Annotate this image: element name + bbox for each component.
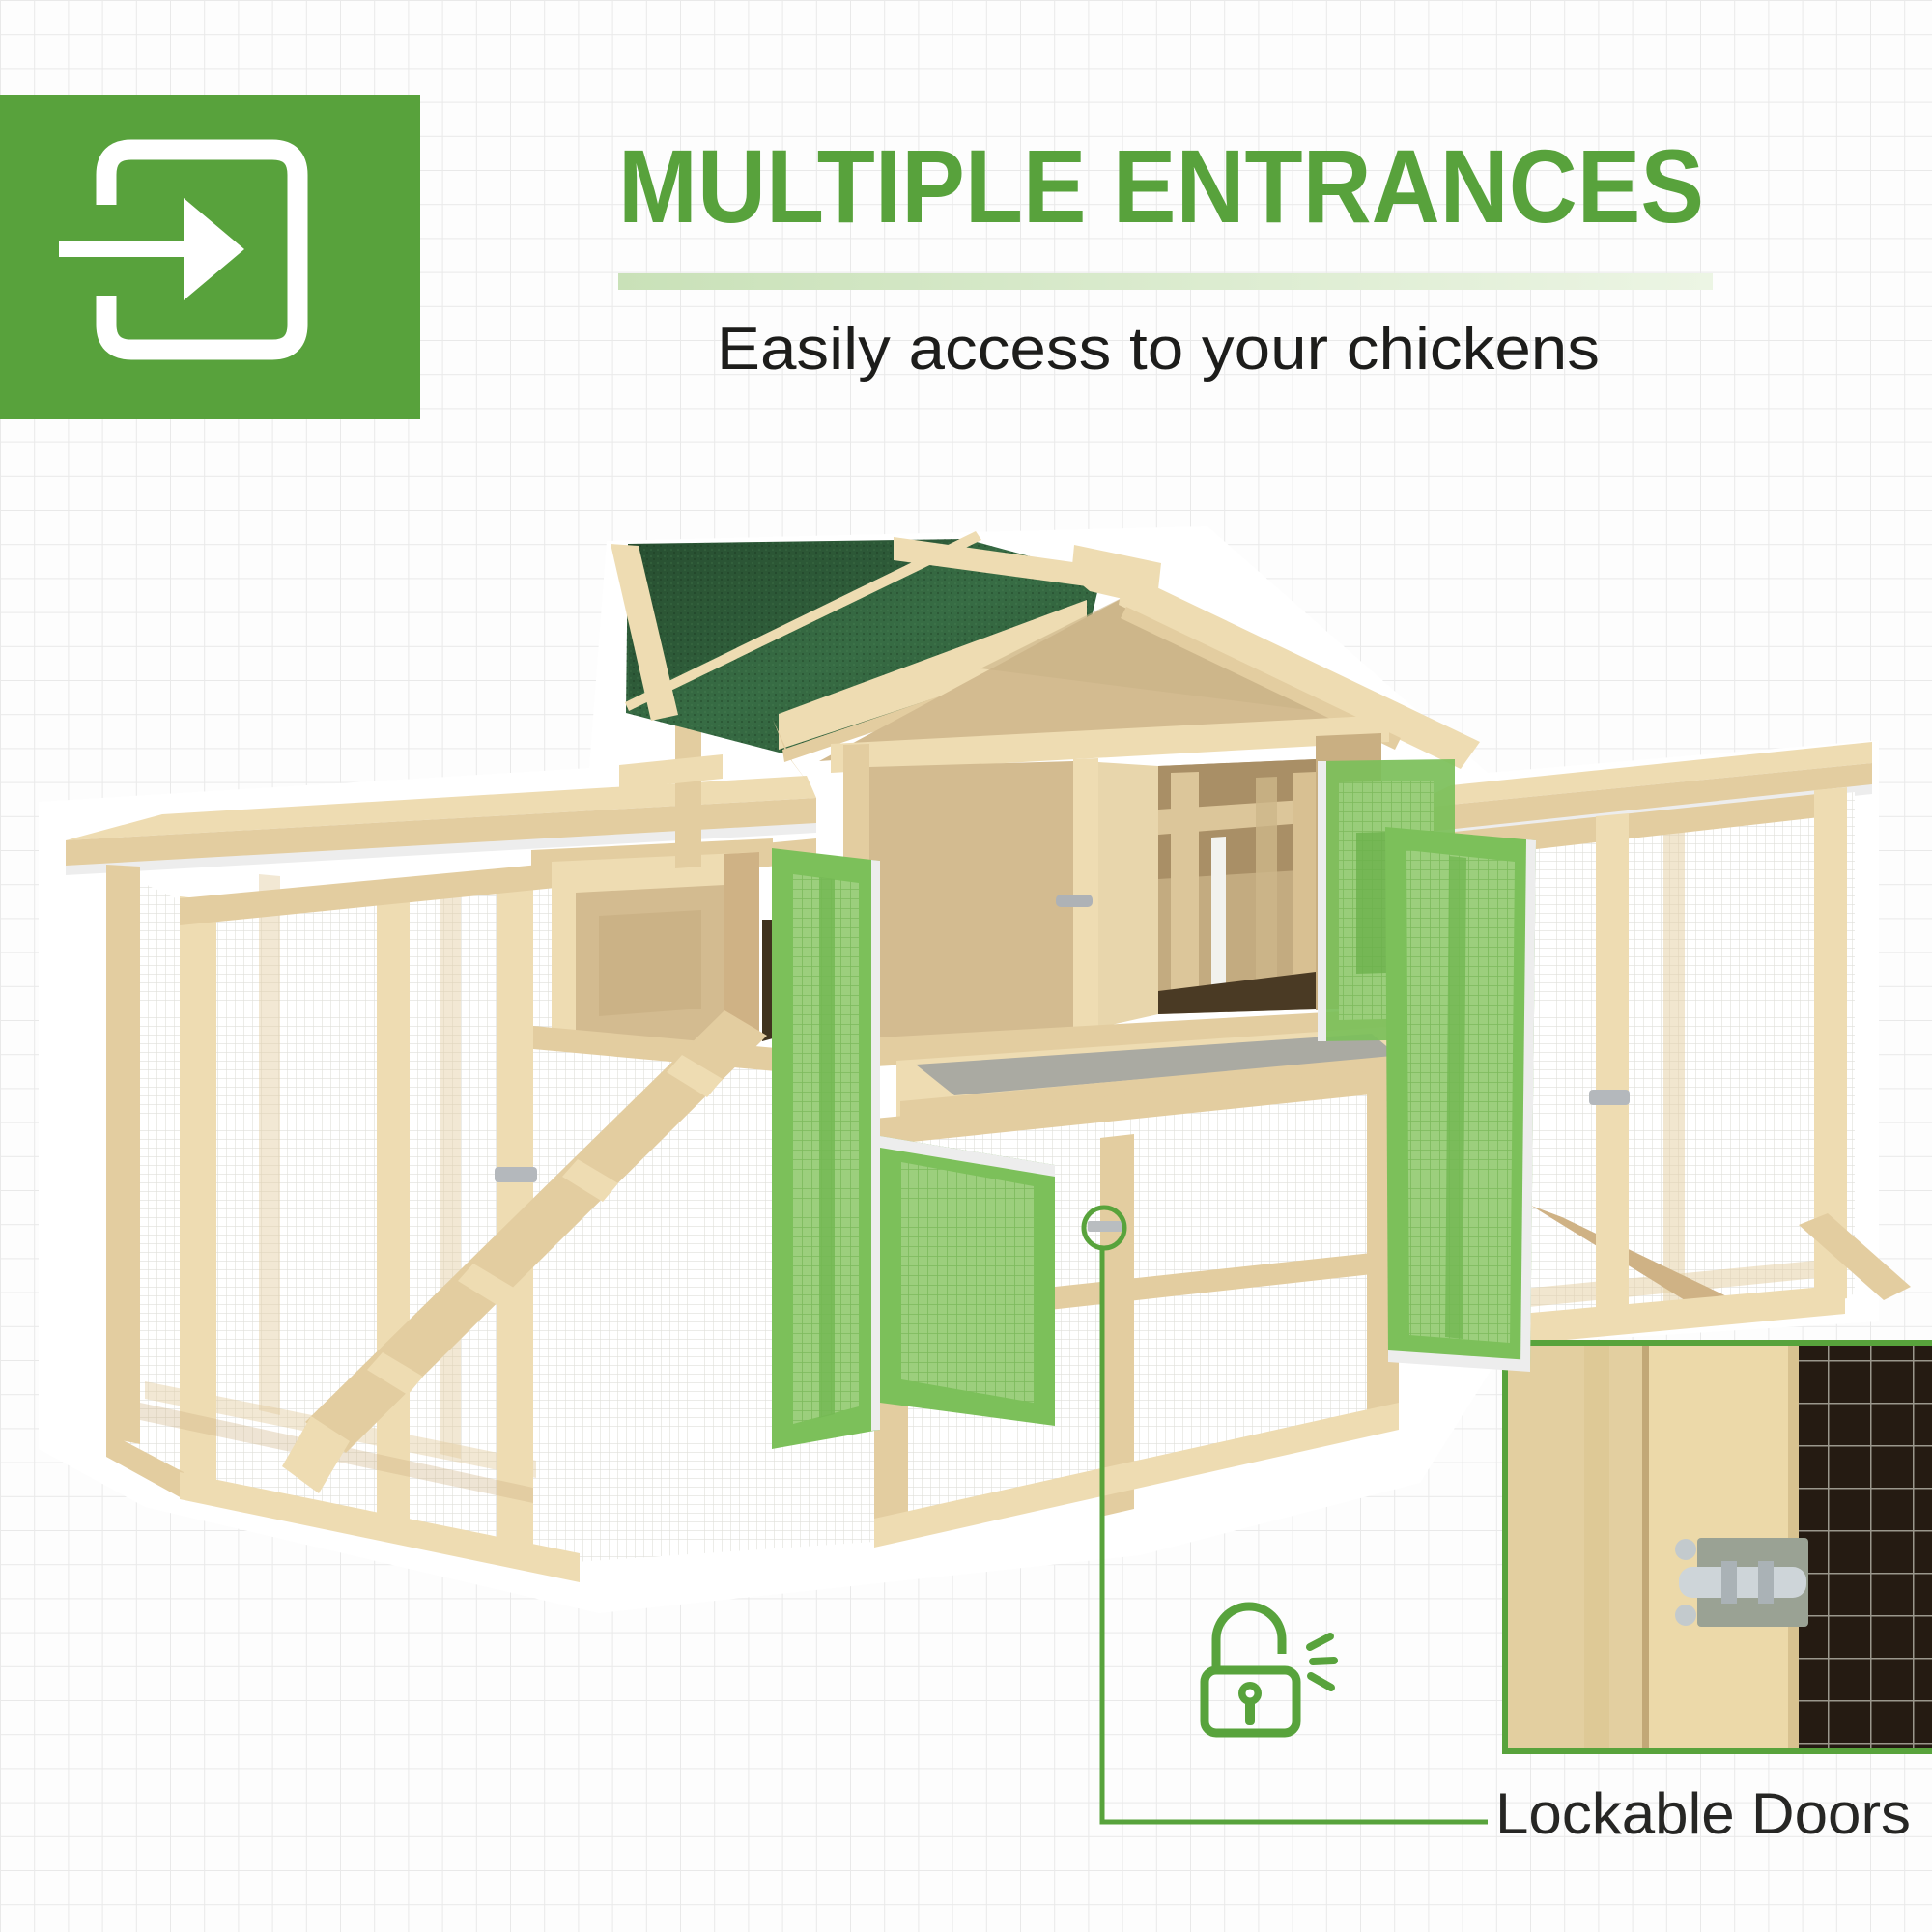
svg-text:Lockable Doors: Lockable Doors xyxy=(1495,1781,1911,1846)
svg-text:Easily access to your chickens: Easily access to your chickens xyxy=(717,316,1600,383)
svg-text:MULTIPLE ENTRANCES: MULTIPLE ENTRANCES xyxy=(618,128,1704,244)
